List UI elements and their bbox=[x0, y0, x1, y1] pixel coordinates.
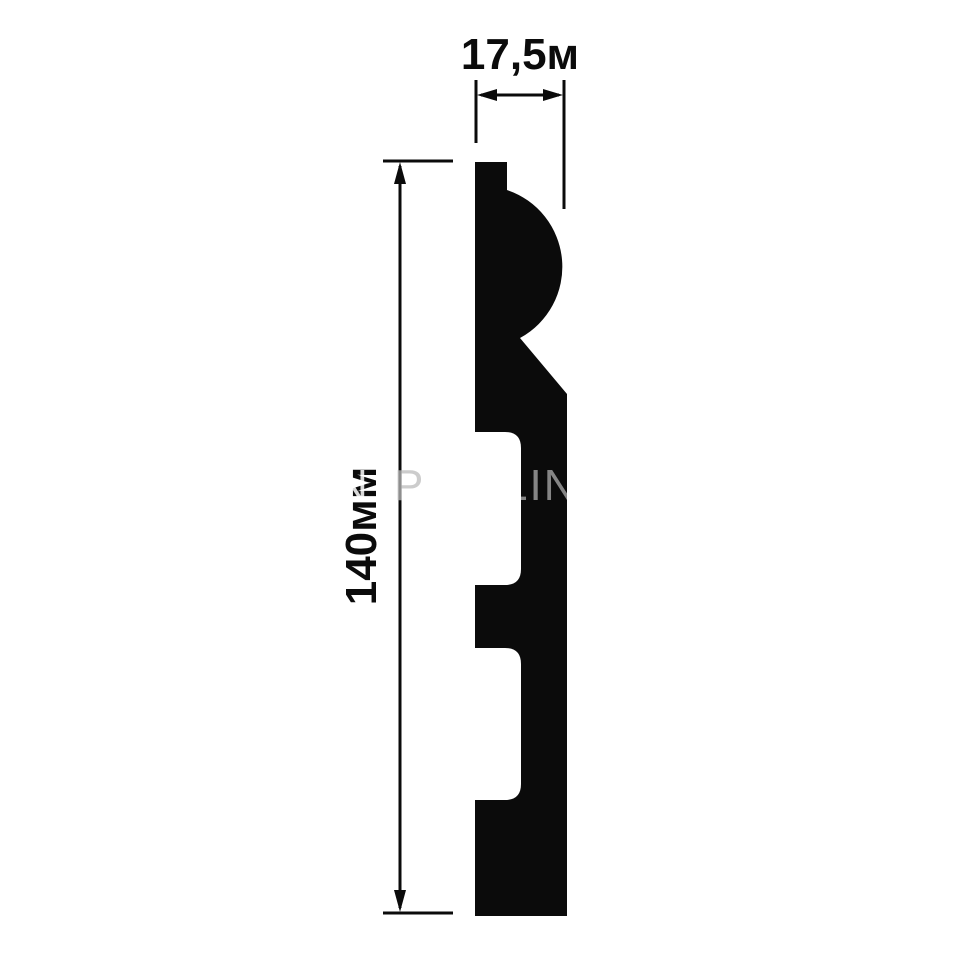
height-dimension-lines bbox=[383, 161, 453, 913]
width-arrowhead-right bbox=[543, 89, 563, 101]
height-arrowhead-top bbox=[394, 162, 406, 184]
width-arrowhead-left bbox=[477, 89, 497, 101]
diagram-canvas: 17,5м 140мм N P LIN bbox=[0, 0, 970, 970]
profile-silhouette bbox=[475, 162, 567, 916]
height-arrowhead-bottom bbox=[394, 890, 406, 912]
profile-drawing bbox=[0, 0, 970, 970]
height-dimension-label: 140мм bbox=[340, 467, 384, 606]
width-dimension-label: 17,5м bbox=[461, 33, 579, 77]
